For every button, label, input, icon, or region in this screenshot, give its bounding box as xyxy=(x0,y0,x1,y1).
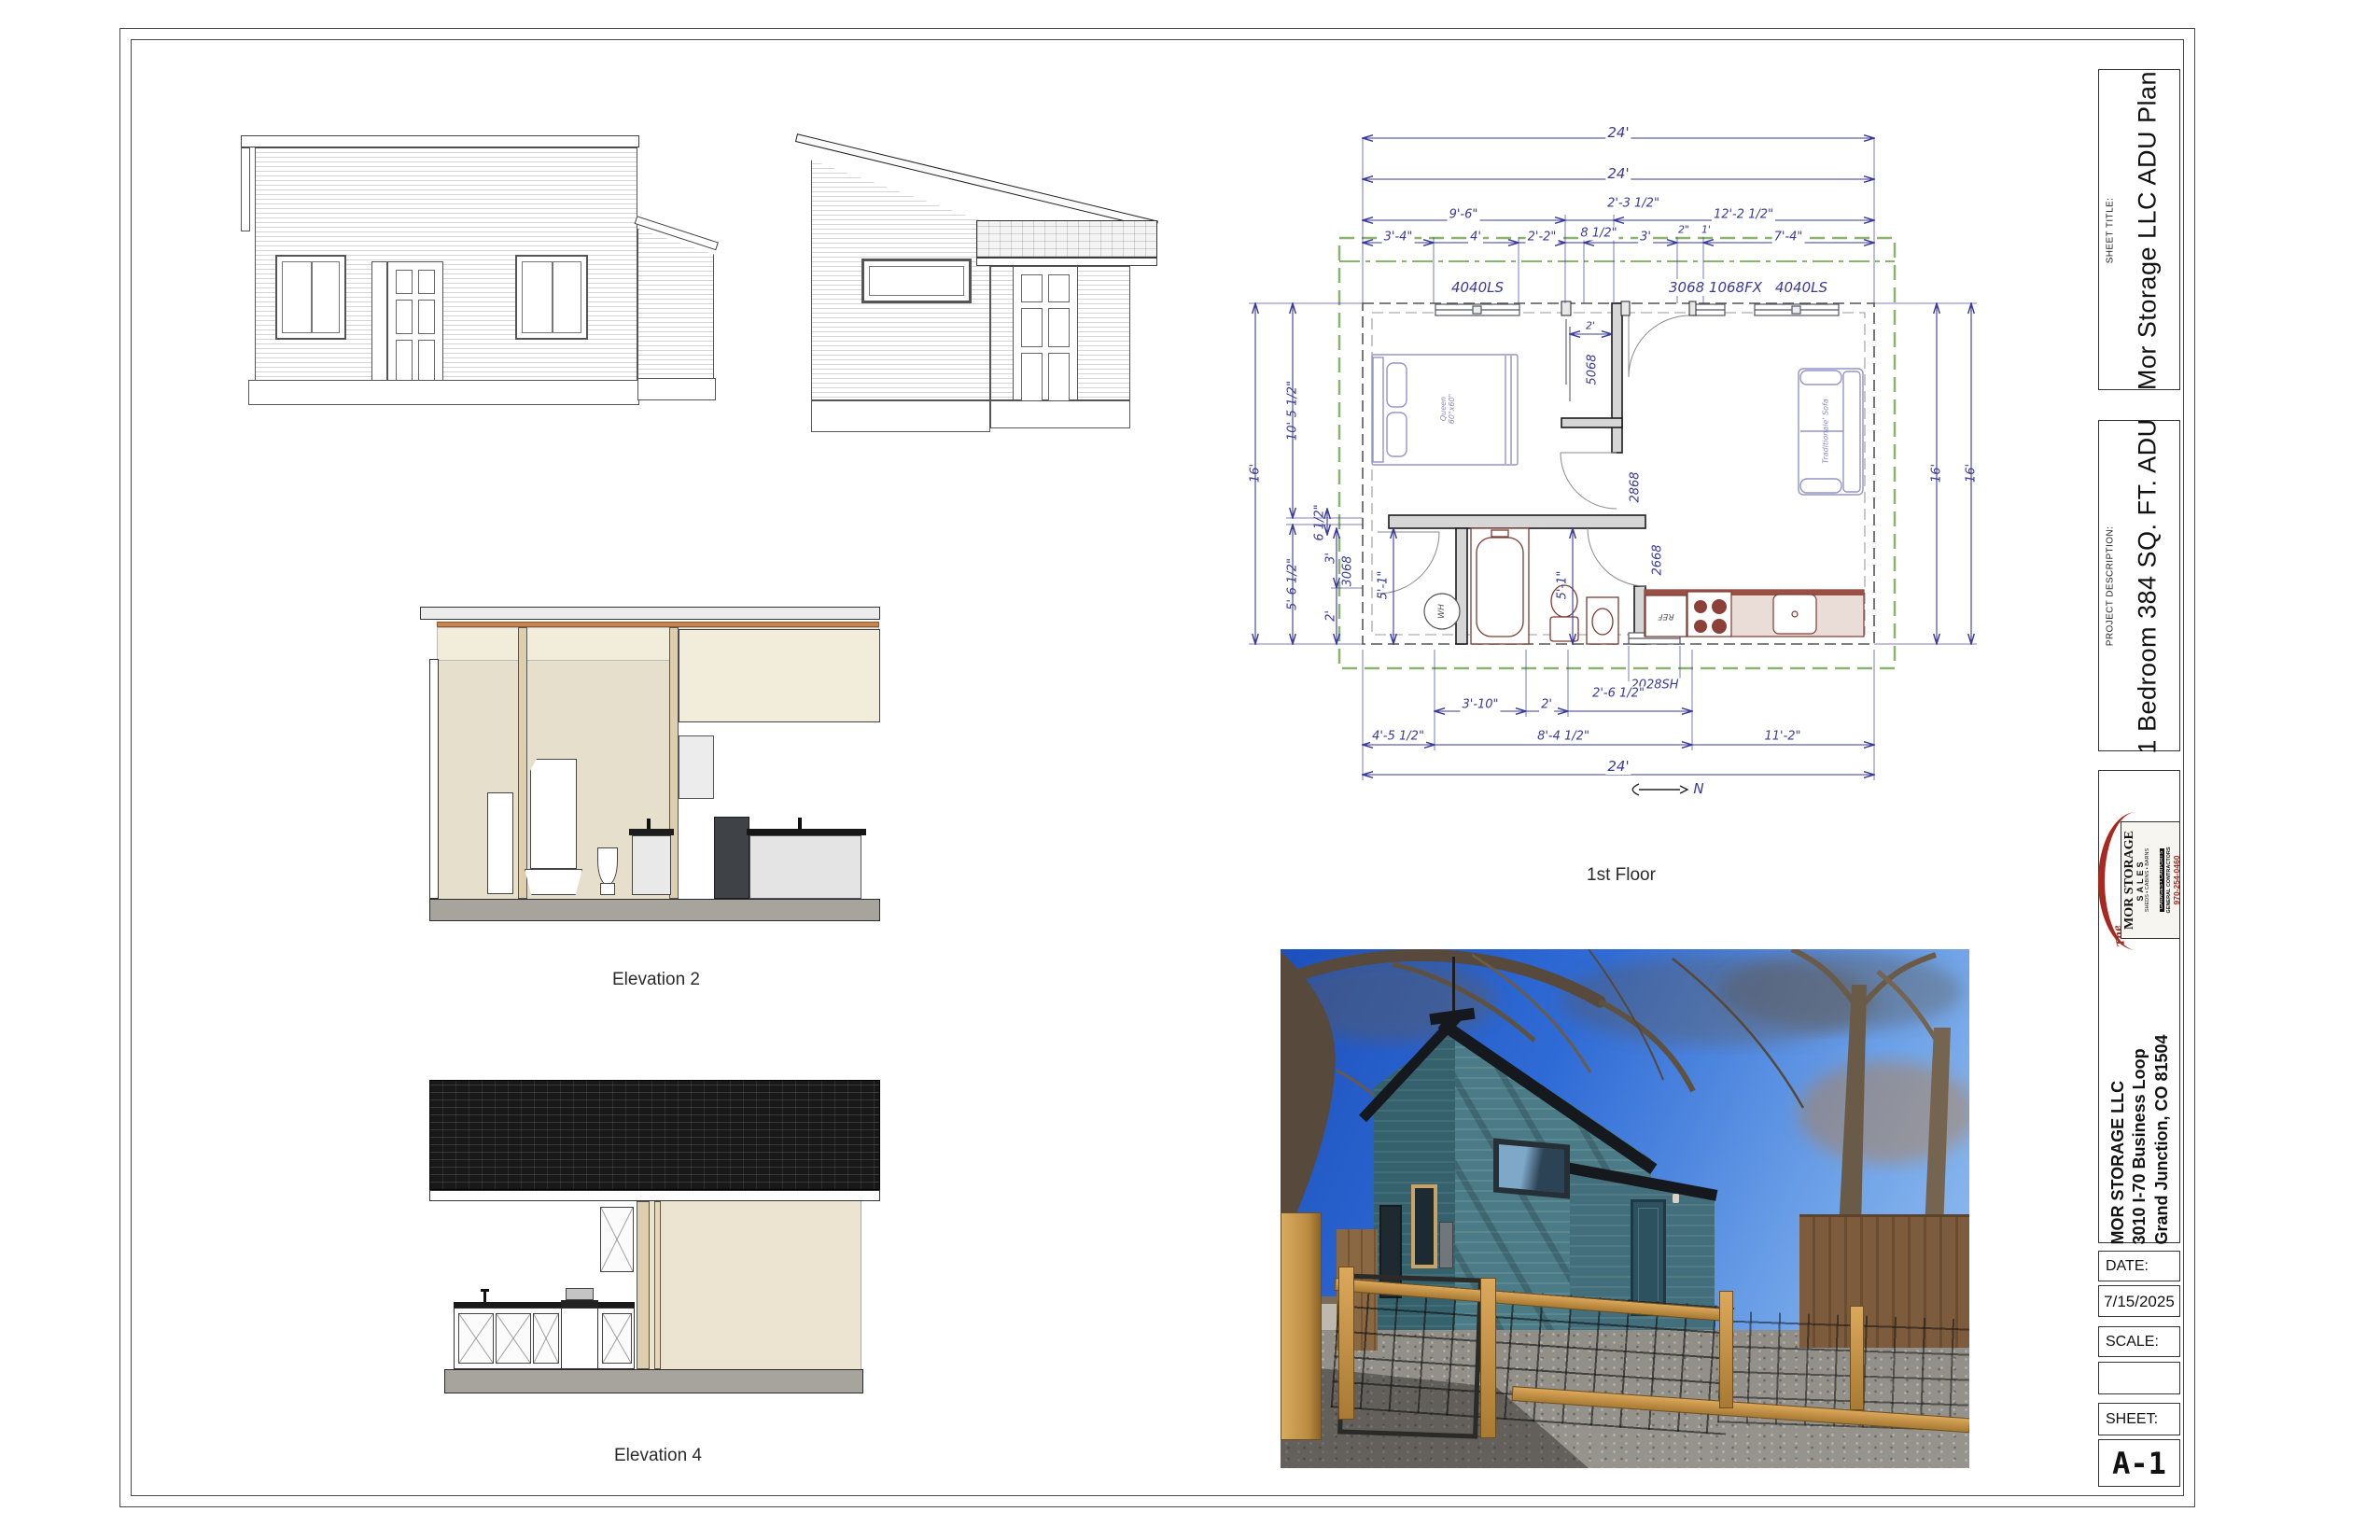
sheet-label-box: SHEET: xyxy=(2098,1403,2180,1435)
company-address1: 3010 I-70 Business Loop xyxy=(2129,960,2150,1245)
dim-left-3: 3' xyxy=(1324,551,1338,566)
dim-8-half: 8 1/2" xyxy=(1578,227,1618,241)
dim-left-16: 16' xyxy=(1249,462,1263,484)
e2-shower-pan xyxy=(525,869,582,895)
dim-3-4: 3'-4" xyxy=(1382,231,1415,245)
label-bed: Queen 60"x60" xyxy=(1440,392,1457,426)
dim-4: 4' xyxy=(1468,231,1483,245)
side-door xyxy=(1013,266,1078,400)
dim-11-2: 11'-2" xyxy=(1762,730,1802,744)
dim-right-16-a: 16' xyxy=(1930,462,1944,484)
logo-sub: SALES xyxy=(2136,822,2145,938)
front-wing-foundation xyxy=(637,378,716,400)
adu-wing-door xyxy=(1631,1199,1666,1316)
date-value: 7/15/2025 xyxy=(2099,1293,2179,1311)
front-foundation xyxy=(248,380,639,405)
drawing-sheet: SHEET TITLE: Mor Storage LLC ADU Plan PR… xyxy=(0,0,2380,1540)
e2-upper-cabinet xyxy=(679,735,714,799)
side-door-lite xyxy=(1048,353,1070,403)
e4-range-hood xyxy=(566,1288,594,1300)
kitchen-counter xyxy=(1645,590,1864,637)
e2-vanity-top xyxy=(629,829,674,835)
e4-upper-cabinet xyxy=(600,1207,634,1272)
e2-bath-faucet xyxy=(647,819,651,829)
sheet-title-label: SHEET TITLE: xyxy=(2106,198,2116,264)
date-value-box: 7/15/2025 xyxy=(2098,1285,2180,1317)
scale-label-box: SCALE: xyxy=(2098,1326,2180,1357)
dim-2-6-half: 2'-6 1/2" xyxy=(1590,687,1646,701)
e4-pilaster-1 xyxy=(637,1201,650,1369)
dim-1: 1' xyxy=(1700,224,1713,236)
front-window-right-mullion xyxy=(552,261,553,333)
scale-value-box xyxy=(2098,1362,2180,1394)
dim-3-10: 3'-10" xyxy=(1460,698,1500,712)
fence-post-3 xyxy=(1719,1291,1733,1408)
e4-fascia xyxy=(429,1190,880,1201)
e2-counter-top xyxy=(747,829,866,835)
front-door-lite xyxy=(418,340,435,384)
label-window-right: 4040LS xyxy=(1773,279,1829,296)
fence-post-2 xyxy=(1480,1278,1496,1438)
side-door-lite xyxy=(1021,353,1043,403)
front-door-lite xyxy=(396,270,413,294)
label-bedroom-door: 2868 xyxy=(1629,469,1643,504)
e2-shower xyxy=(530,759,577,869)
label-window-left: 4040LS xyxy=(1449,279,1505,296)
adu-porch-light-icon xyxy=(1673,1194,1679,1203)
dim-bottom-24: 24' xyxy=(1605,758,1631,775)
company-address2: Grand Junction, CO 81504 xyxy=(2151,960,2173,1245)
dim-bottom-2: 2' xyxy=(1539,698,1554,712)
label-refrigerator: REF xyxy=(1656,611,1675,621)
side-door-lite xyxy=(1048,274,1070,302)
dim-closet-2: 2' xyxy=(1584,320,1597,332)
side-foundation-right xyxy=(990,400,1130,428)
exterior-elevation-side xyxy=(796,132,1171,440)
front-door xyxy=(387,261,443,381)
side-door-lite xyxy=(1021,274,1043,302)
label-front-door-window: 3068 1068FX xyxy=(1667,279,1764,296)
e4-floor-slab xyxy=(444,1369,863,1393)
e4-range-controls xyxy=(561,1300,598,1308)
scale-label: SCALE: xyxy=(2099,1334,2159,1351)
sofa xyxy=(1799,369,1863,495)
north-label: N xyxy=(1691,780,1705,797)
dim-left-2: 2' xyxy=(1324,609,1338,623)
e4-sink-faucet xyxy=(483,1291,486,1302)
front-door-lite xyxy=(418,270,435,294)
label-sofa: Traditionale' Sofa xyxy=(1823,397,1831,466)
front-left-trim xyxy=(241,147,250,231)
adu-wing-door-panel xyxy=(1638,1208,1659,1308)
fence-post-4 xyxy=(1850,1306,1864,1410)
e4-cabinet-door xyxy=(458,1313,494,1364)
e2-upper-wall-panel xyxy=(679,629,880,722)
dim-4-5-half: 4'-5 1/2" xyxy=(1370,730,1426,744)
front-window-right xyxy=(515,255,588,340)
e2-ceiling xyxy=(420,607,880,620)
e4-sink-faucet-spout xyxy=(481,1289,489,1292)
dim-bath-a: 5'-1" xyxy=(1377,569,1391,602)
sheet-number-box: A-1 xyxy=(2098,1439,2180,1487)
dim-2-3-half: 2'-3 1/2" xyxy=(1605,197,1661,211)
company-logo: The MOR STORAGE SALES SHEDS • CABINS • B… xyxy=(2098,810,2182,952)
dim-left-10-5: 10'-5 1/2" xyxy=(1286,379,1300,442)
label-water-heater: WH xyxy=(1437,602,1447,621)
side-transom-window xyxy=(861,259,972,303)
e2-base-cabinets xyxy=(749,835,861,899)
e4-cabinet-door xyxy=(533,1313,559,1364)
dim-24-b: 24' xyxy=(1605,165,1631,182)
plan-caption: 1st Floor xyxy=(1587,865,1656,886)
adu-west-window xyxy=(1411,1184,1437,1268)
logo-sign: MOR STORAGE SALES SHEDS • CABINS • BARNS… xyxy=(2121,821,2180,939)
adu-meter-box xyxy=(1439,1222,1453,1268)
dim-2in: 2" xyxy=(1676,224,1691,236)
e2-toilet-base xyxy=(600,883,615,895)
side-porch-fascia xyxy=(976,258,1157,266)
logo-products2: GARAGES • CARPORTS xyxy=(2160,848,2165,913)
dim-left-5-6: 5'-6 1/2" xyxy=(1286,556,1300,612)
adu-transom-window xyxy=(1493,1138,1570,1198)
project-description: 1 Bedroom 384 SQ. FT. ADU xyxy=(2134,418,2163,753)
e2-wall-end-cap xyxy=(429,659,439,899)
dim-24-a: 24' xyxy=(1605,124,1631,141)
north-arrow-icon xyxy=(1632,784,1687,795)
logo-canvas: The MOR STORAGE SALES SHEDS • CABINS • B… xyxy=(2098,810,2182,952)
dim-8-4-half: 8'-4 1/2" xyxy=(1535,730,1591,744)
dim-12-2-half: 12'-2 1/2" xyxy=(1712,208,1775,222)
e2-vanity xyxy=(632,835,671,895)
fence-corner-post xyxy=(1281,1212,1322,1440)
front-door-sidelite xyxy=(371,261,387,381)
date-label-box: DATE: xyxy=(2098,1251,2180,1281)
e4-cabinet-door xyxy=(496,1313,531,1364)
e4-roof xyxy=(429,1080,880,1190)
side-transom-pane xyxy=(869,266,964,296)
e2-water-heater xyxy=(487,792,513,894)
titleblock-sheet-title-box: SHEET TITLE: Mor Storage LLC ADU Plan xyxy=(2098,69,2180,390)
floor-plan: 24' 24' 9'-6" 2'-3 1/2" 12'-2 1/2" 3'-4"… xyxy=(1241,121,1979,896)
titleblock-description-box: PROJECT DESCRIPTION: 1 Bedroom 384 SQ. F… xyxy=(2098,420,2180,751)
date-label: DATE: xyxy=(2099,1258,2149,1275)
logo-phone: 970-254-0460 xyxy=(2173,822,2181,938)
fence-post-1 xyxy=(1338,1267,1354,1420)
dim-bath-b: 5'-1" xyxy=(1556,569,1570,602)
project-description-label: PROJECT DESCRIPTION: xyxy=(2106,526,2116,646)
e4-range xyxy=(561,1308,598,1369)
dim-left-6-half: 6 1/2" xyxy=(1313,502,1327,542)
e4-pilaster-2 xyxy=(654,1201,661,1369)
elevation2-caption: Elevation 2 xyxy=(612,970,700,990)
side-porch-roof xyxy=(976,220,1157,258)
dim-right-16-b: 16' xyxy=(1965,462,1979,484)
dim-7-4: 7'-4" xyxy=(1772,231,1805,245)
side-door-lite xyxy=(1048,308,1070,347)
dim-3: 3' xyxy=(1638,231,1653,245)
elevation4-caption: Elevation 4 xyxy=(614,1446,702,1466)
titleblock-company-box: The MOR STORAGE SALES SHEDS • CABINS • B… xyxy=(2098,770,2180,1243)
label-bath-door: 3068 xyxy=(1341,553,1355,588)
e2-refrigerator xyxy=(714,817,749,899)
e2-floor-slab xyxy=(429,899,880,921)
interior-elevation-2: Elevation 2 xyxy=(420,607,887,994)
label-side-door: 2668 xyxy=(1651,542,1665,577)
front-roof-fascia xyxy=(241,135,639,147)
e4-cabinet-door xyxy=(602,1313,632,1364)
side-foundation-left xyxy=(811,400,990,432)
logo-products1: SHEDS • CABINS • BARNS xyxy=(2146,822,2151,938)
front-wing-wall xyxy=(637,229,714,380)
side-door-lite xyxy=(1021,308,1043,347)
front-window-left xyxy=(275,255,346,340)
exterior-elevation-front xyxy=(241,133,721,410)
sheet-title: Mor Storage LLC ADU Plan xyxy=(2134,71,2163,390)
dim-9-6: 9'-6" xyxy=(1448,208,1480,222)
company-name: MOR STORAGE LLC xyxy=(2107,960,2129,1245)
front-door-lite xyxy=(396,300,413,333)
e2-kitchen-faucet xyxy=(798,818,802,829)
logo-brand: MOR STORAGE xyxy=(2123,822,2136,938)
e4-wall xyxy=(637,1201,861,1369)
front-window-left-mullion xyxy=(311,261,313,333)
dim-2-2: 2'-2" xyxy=(1526,231,1559,245)
interior-elevation-4: Elevation 4 xyxy=(429,1078,891,1475)
site-photo xyxy=(1281,949,1969,1468)
front-door-lite xyxy=(418,300,435,333)
company-address-block: MOR STORAGE LLC 3010 I-70 Business Loop … xyxy=(2107,960,2173,1245)
e2-stud-1 xyxy=(518,627,527,899)
company-address-lines: MOR STORAGE LLC 3010 I-70 Business Loop … xyxy=(2107,960,2173,1245)
label-closet-door: 5068 xyxy=(1586,352,1600,386)
front-door-lite xyxy=(396,340,413,384)
sheet-label: SHEET: xyxy=(2099,1411,2158,1428)
sheet-number: A-1 xyxy=(2099,1446,2179,1481)
